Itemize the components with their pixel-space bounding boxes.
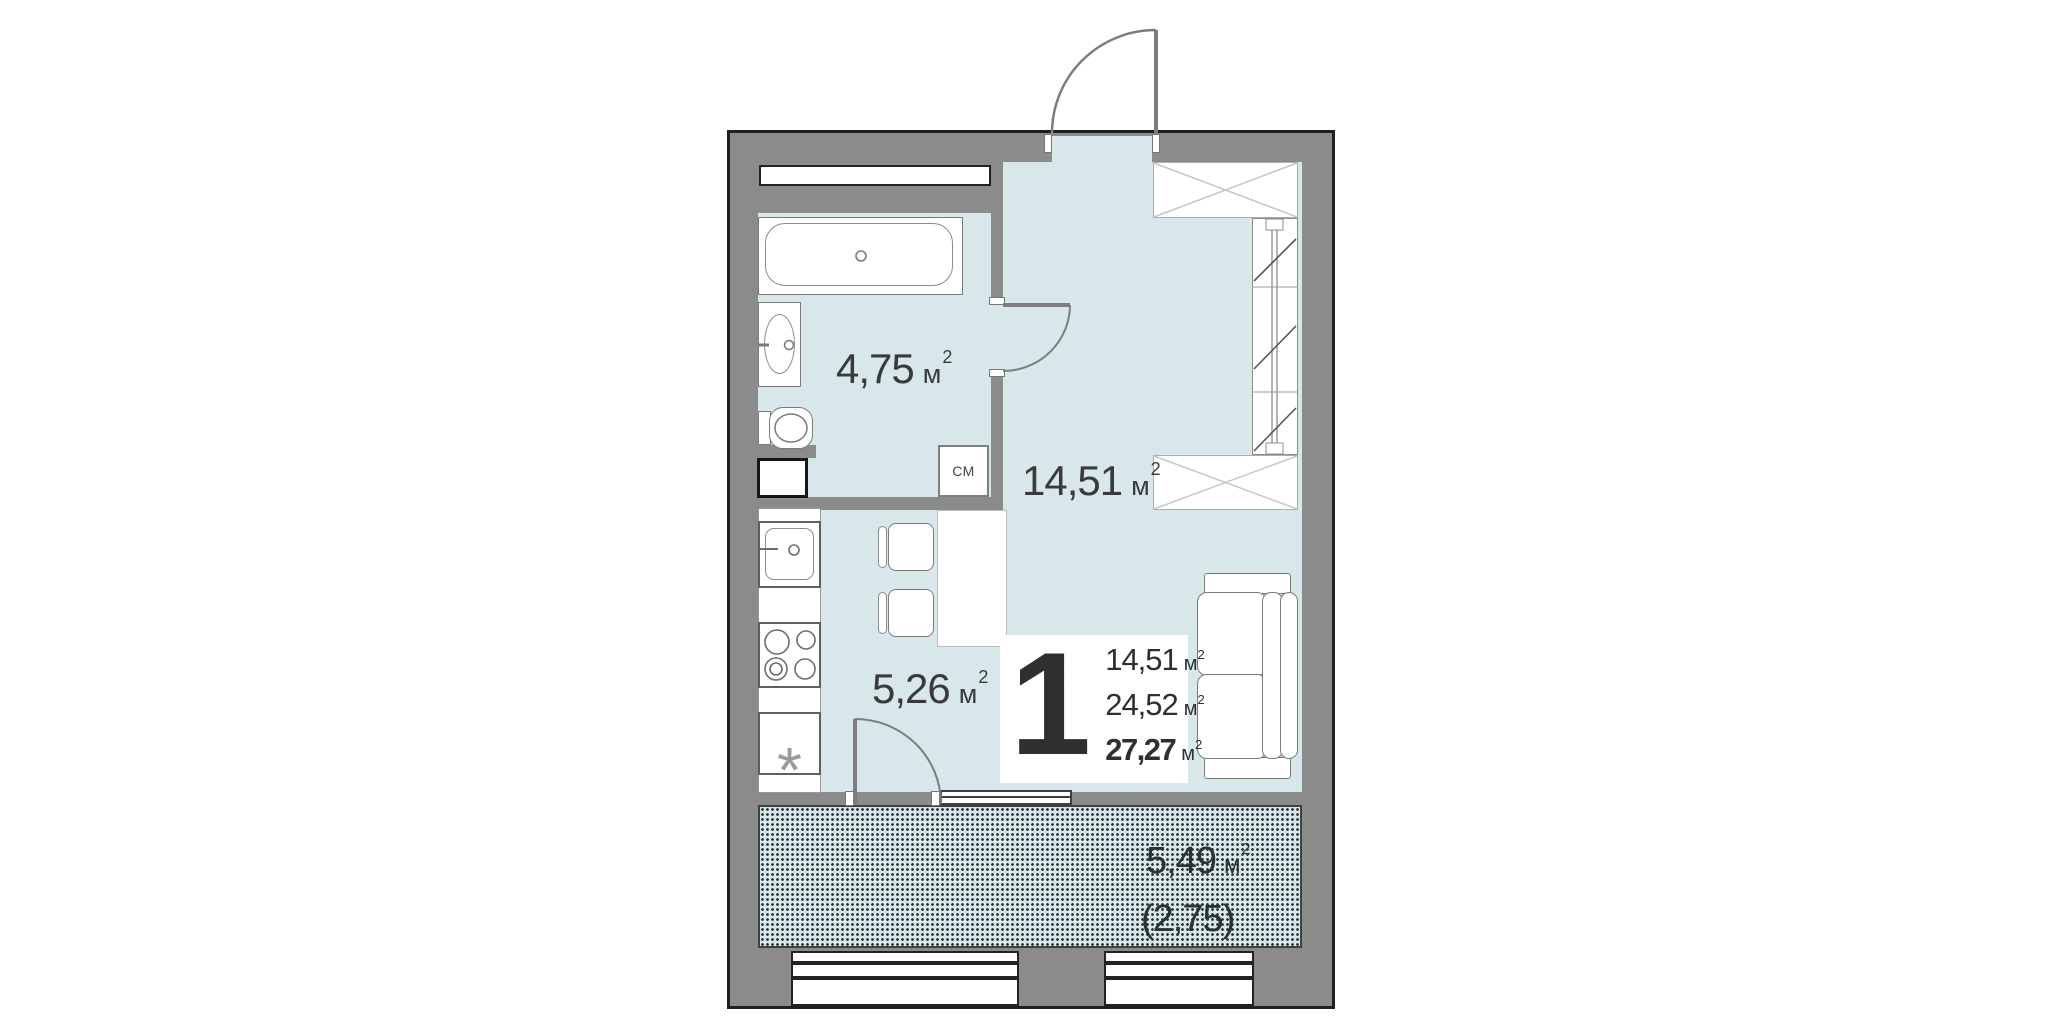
chair-back [878,592,887,634]
window [1104,963,1254,978]
window [791,978,1019,1006]
ventilation-shaft [757,458,808,498]
bathroom-wall [991,213,1003,297]
balcony-coefficient-label: (2,75) [1141,900,1234,938]
sofa-seat [1197,592,1267,676]
apartment-area-row: 24,52м2 [1105,687,1203,732]
sofa-seat [1197,674,1267,759]
kitchen-sink-bowl [765,528,814,580]
kitchen-area-label: 5,26м2 [872,668,985,710]
stove [758,622,821,688]
total-area-row: 27,27м2 [1105,732,1203,777]
balcony-glazing [940,790,1072,805]
wardrobe-top [1153,162,1298,218]
kitchen-sink [758,521,821,588]
wardrobe-bottom [1153,455,1298,510]
star-symbol: * [760,714,819,799]
floorplan: СМ * 1 14,51м2 24,52м2 27,27м2 [0,0,2056,1028]
bathroom-door-jamb [989,369,1005,377]
balcony-area-label: 5,49м2 [1146,842,1247,880]
toilet [769,407,813,449]
washbasin-bowl [764,314,795,374]
balcony-partition-wall [1072,792,1302,805]
window [791,963,1019,978]
washing-machine: СМ [938,445,989,497]
window [791,951,1019,963]
chair [888,589,934,637]
chair-back [878,526,887,568]
fridge-slot: * [758,712,821,775]
bathroom-door-jamb [989,297,1005,305]
entrance-door [1052,30,1156,134]
entrance-opening [1052,136,1152,162]
chair [888,523,934,571]
window [1104,951,1254,963]
washbasin [758,302,801,387]
balcony-door-jamb [845,791,854,806]
washing-machine-label: СМ [940,447,987,495]
apartment-info-card: 1 14,51м2 24,52м2 27,27м2 [1000,635,1188,783]
window [1104,978,1254,1006]
living-area-row: 14,51м2 [1105,642,1203,687]
entrance-door-jamb [1152,134,1160,153]
bathroom-wall [991,377,1003,510]
closet-rod [1252,218,1298,455]
bathtub-inner [765,223,953,286]
sofa-armrest [1204,757,1291,779]
sofa-backrest [1280,592,1298,759]
bathtub [758,217,963,295]
balcony-door-jamb [931,791,940,806]
dining-table [937,510,1007,647]
sofa-armrest [1204,573,1291,594]
entrance-door-jamb [1044,134,1052,153]
apartment-number: 1 [1010,631,1091,777]
bathroom-area-label: 4,75м2 [836,348,949,390]
wall-niche [759,165,991,186]
living-area-label: 14,51м2 [1022,460,1158,502]
